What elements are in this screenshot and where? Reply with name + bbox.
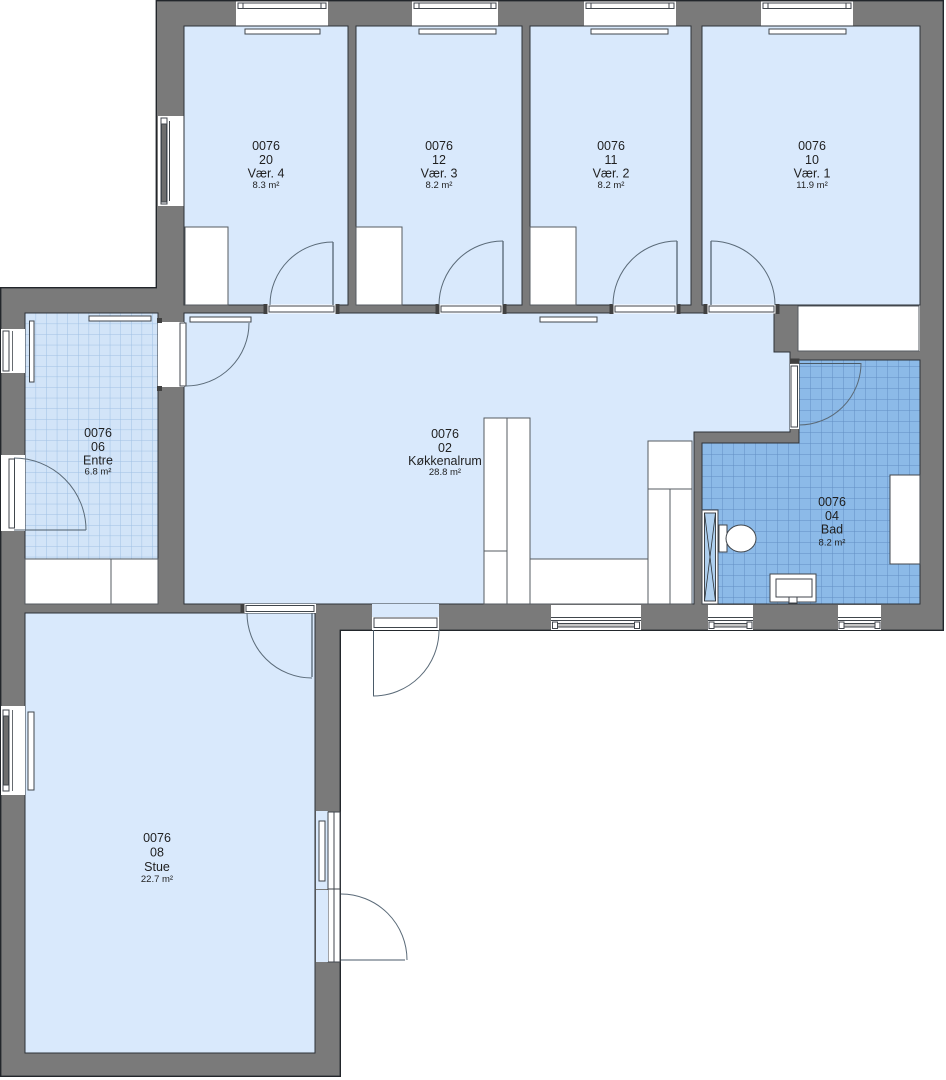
svg-text:0076: 0076 <box>431 427 459 441</box>
svg-text:0076: 0076 <box>425 139 453 153</box>
svg-text:8.2 m²: 8.2 m² <box>598 180 625 191</box>
svg-text:Køkkenalrum: Køkkenalrum <box>408 454 482 468</box>
svg-text:0076: 0076 <box>84 426 112 440</box>
svg-text:Vær. 1: Vær. 1 <box>794 167 831 181</box>
svg-text:Vær. 3: Vær. 3 <box>421 167 458 181</box>
svg-text:20: 20 <box>259 153 273 167</box>
svg-text:0076: 0076 <box>798 139 826 153</box>
svg-text:10: 10 <box>805 153 819 167</box>
svg-text:Bad: Bad <box>821 523 843 537</box>
svg-text:0076: 0076 <box>597 139 625 153</box>
svg-text:02: 02 <box>438 441 452 455</box>
svg-text:0076: 0076 <box>818 495 846 509</box>
svg-text:12: 12 <box>432 153 446 167</box>
svg-text:08: 08 <box>150 846 164 860</box>
svg-text:Vær. 4: Vær. 4 <box>248 167 285 181</box>
svg-text:06: 06 <box>91 440 105 454</box>
svg-text:Stue: Stue <box>144 860 170 874</box>
svg-text:11: 11 <box>605 153 618 167</box>
svg-text:8.2 m²: 8.2 m² <box>819 538 846 549</box>
svg-text:28.8 m²: 28.8 m² <box>429 467 461 478</box>
svg-text:Entre: Entre <box>83 454 113 468</box>
svg-text:0076: 0076 <box>143 831 171 845</box>
svg-text:8.3 m²: 8.3 m² <box>253 180 280 191</box>
svg-text:Vær. 2: Vær. 2 <box>593 167 630 181</box>
svg-text:11.9 m²: 11.9 m² <box>796 180 828 191</box>
svg-text:04: 04 <box>825 509 839 523</box>
svg-text:8.2 m²: 8.2 m² <box>426 180 453 191</box>
svg-text:22.7 m²: 22.7 m² <box>141 874 173 885</box>
svg-text:0076: 0076 <box>252 139 280 153</box>
svg-text:6.8 m²: 6.8 m² <box>85 467 112 478</box>
